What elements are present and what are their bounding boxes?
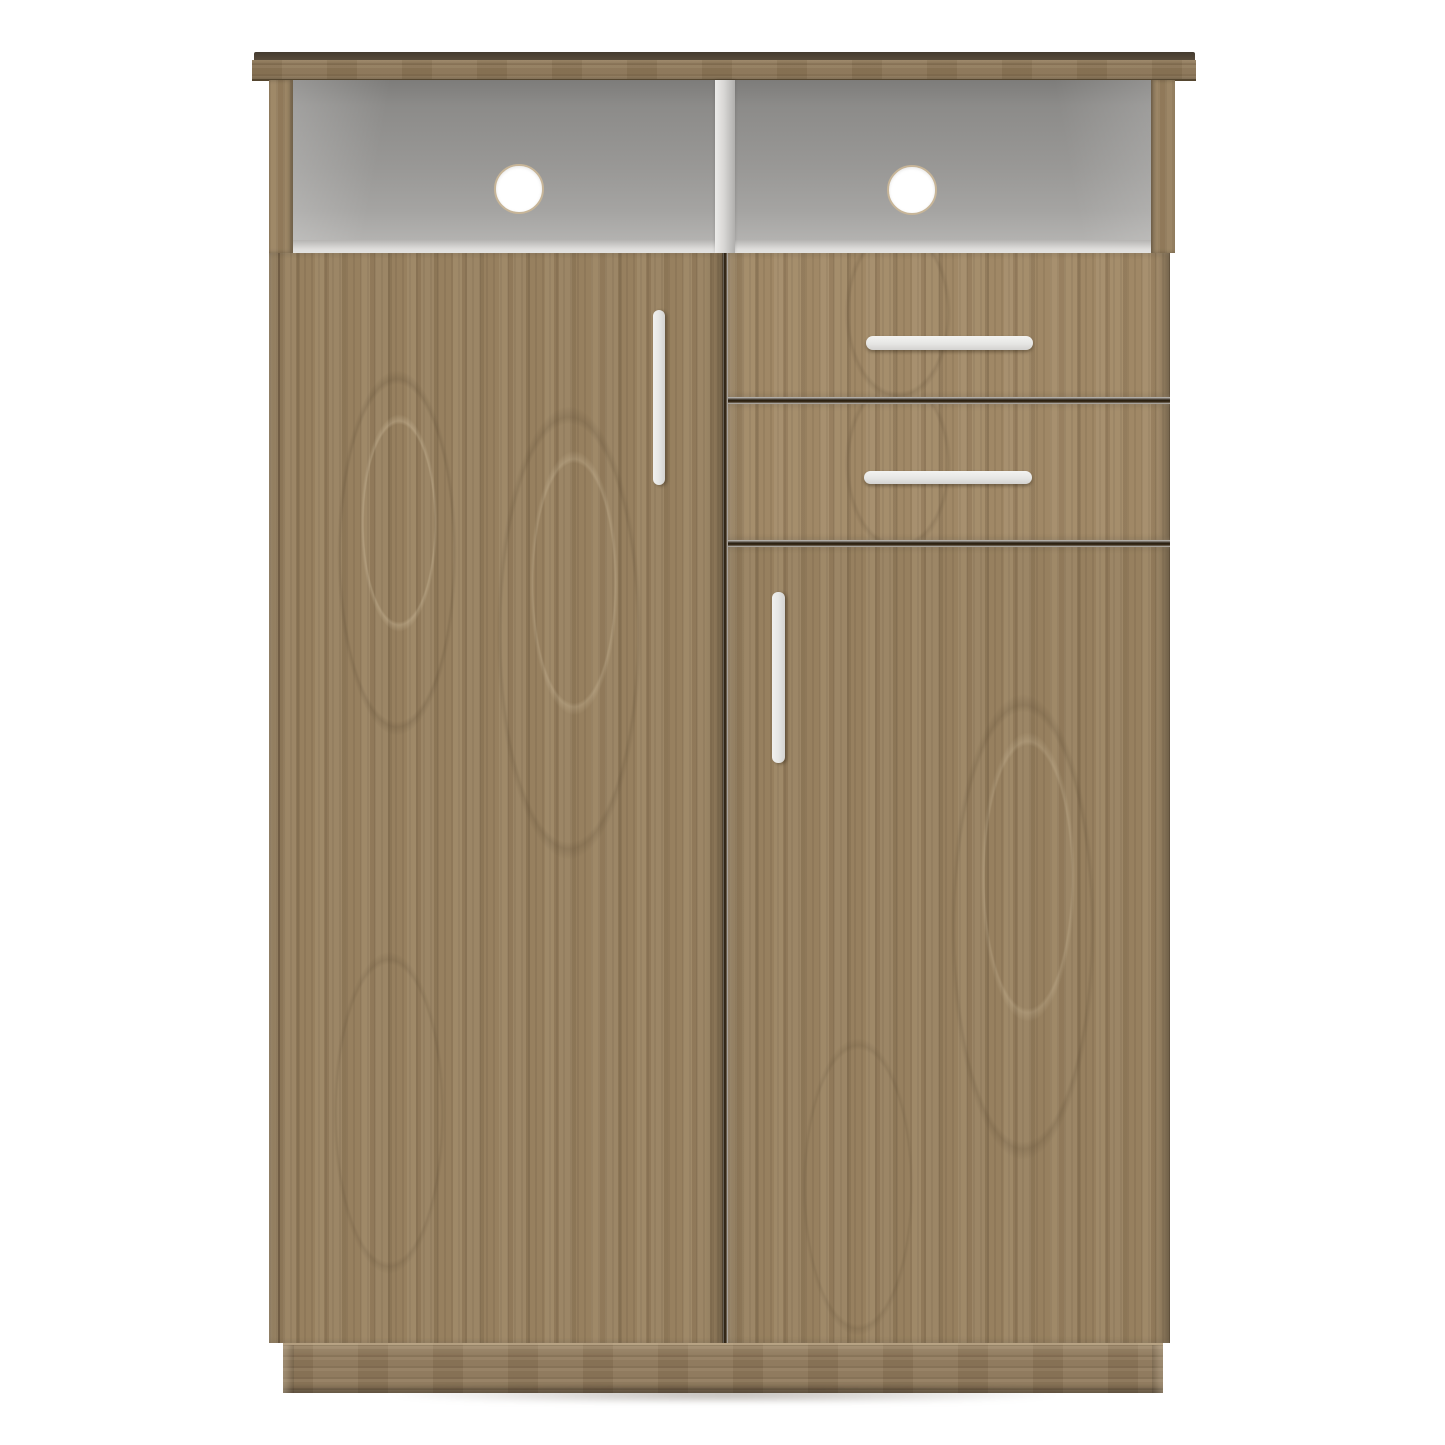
floor-shadow	[272, 1386, 1174, 1402]
right-door	[728, 547, 1170, 1343]
left-door	[269, 253, 723, 1343]
drawer-gap-1	[728, 397, 1170, 404]
left-side-panel	[269, 80, 293, 253]
open-shelf-left	[293, 80, 715, 240]
drawer-gap-2	[728, 540, 1170, 547]
cable-hole-right	[887, 165, 937, 215]
left-door-handle	[653, 310, 665, 485]
drawer-top-handle	[866, 336, 1033, 350]
cabinet-top-panel	[252, 60, 1196, 81]
shelf-center-divider	[715, 80, 735, 253]
drawer-bottom-handle	[864, 471, 1032, 484]
product-image	[0, 0, 1445, 1445]
open-shelf-right	[735, 80, 1151, 240]
drawer-top	[728, 253, 1170, 397]
right-door-handle	[772, 592, 785, 763]
cable-hole-left	[494, 164, 544, 214]
right-side-panel	[1151, 80, 1175, 253]
drawer-bottom	[728, 404, 1170, 540]
left-panel-seam	[278, 253, 280, 1343]
